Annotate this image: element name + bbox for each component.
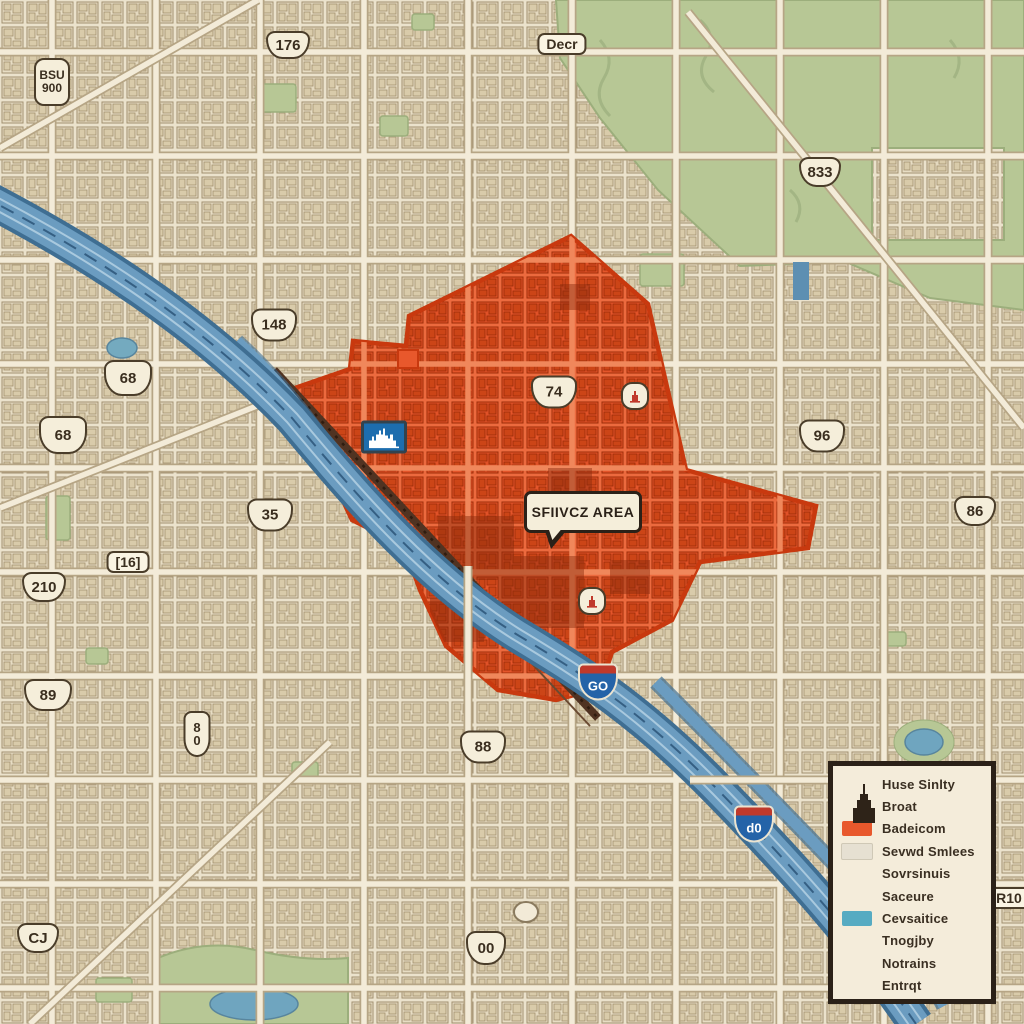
route-shield-35: 35 bbox=[247, 499, 293, 532]
shield-line2: 900 bbox=[42, 82, 62, 95]
service-area-label: SFIIVCZ AREA bbox=[532, 504, 635, 520]
legend-label: Sevwd Smlees bbox=[882, 844, 975, 859]
poi-badge bbox=[578, 587, 606, 615]
legend-row: Tnogjby bbox=[841, 930, 983, 952]
route-shield-bsu900: BSU 900 bbox=[34, 58, 70, 106]
interstate-number: GO bbox=[580, 674, 616, 699]
route-shield-74: 74 bbox=[531, 376, 577, 409]
road-label-16: [16] bbox=[107, 551, 150, 573]
route-shield-88: 88 bbox=[460, 731, 506, 764]
route-shield-148: 148 bbox=[251, 309, 297, 342]
legend-box: Huse Sinlty Broat Badeicom Sevwd Smlees … bbox=[828, 761, 996, 1004]
road-label-decr: Decr bbox=[537, 33, 586, 55]
interstate-red-band bbox=[736, 808, 772, 816]
legend-row: Cevsaitice bbox=[841, 907, 983, 929]
legend-row: Entrqt bbox=[841, 975, 983, 997]
legend-label: Entrqt bbox=[882, 978, 921, 993]
legend-row: Sovrsinuis bbox=[841, 863, 983, 885]
route-shield-68-b: 68 bbox=[39, 416, 87, 454]
city-skyline-icon bbox=[367, 426, 401, 448]
legend-label: Sovrsinuis bbox=[882, 866, 950, 881]
route-shield-80-vertical: 8 0 bbox=[184, 711, 211, 757]
route-shield-89: 89 bbox=[24, 679, 72, 711]
legend-label: Notrains bbox=[882, 956, 936, 971]
legend-label: Badeicom bbox=[882, 821, 946, 836]
service-area-callout: SFIIVCZ AREA bbox=[524, 491, 642, 533]
route-shield-68-a: 68 bbox=[104, 360, 152, 396]
route-shield-176: 176 bbox=[266, 31, 310, 59]
monument-icon bbox=[584, 593, 600, 609]
legend-label: Huse Sinlty bbox=[882, 777, 955, 792]
building-icon bbox=[847, 778, 879, 824]
legend-row: Saceure bbox=[841, 885, 983, 907]
legend-label: Saceure bbox=[882, 889, 934, 904]
shield-line2: 0 bbox=[193, 734, 200, 747]
poi-badge bbox=[621, 382, 649, 410]
legend-row: Notrains bbox=[841, 952, 983, 974]
monument-icon bbox=[627, 388, 643, 404]
legend-label: Cevsaitice bbox=[882, 911, 948, 926]
water-swatch bbox=[842, 911, 872, 926]
legend-row: Sevwd Smlees bbox=[841, 840, 983, 862]
legend-label: Broat bbox=[882, 799, 917, 814]
vintage-city-map: BSU 900 176 Decr 833 148 68 68 74 35 [16… bbox=[0, 0, 1024, 1024]
legend-key-swatch bbox=[841, 843, 873, 860]
interstate-red-band bbox=[580, 666, 616, 674]
interstate-number: d0 bbox=[736, 816, 772, 841]
legend-label: Tnogjby bbox=[882, 933, 934, 948]
downtown-sign bbox=[361, 421, 407, 454]
route-shield-96: 96 bbox=[799, 420, 845, 453]
pale-swatch bbox=[841, 843, 873, 860]
legend-key-swatch bbox=[841, 911, 873, 926]
